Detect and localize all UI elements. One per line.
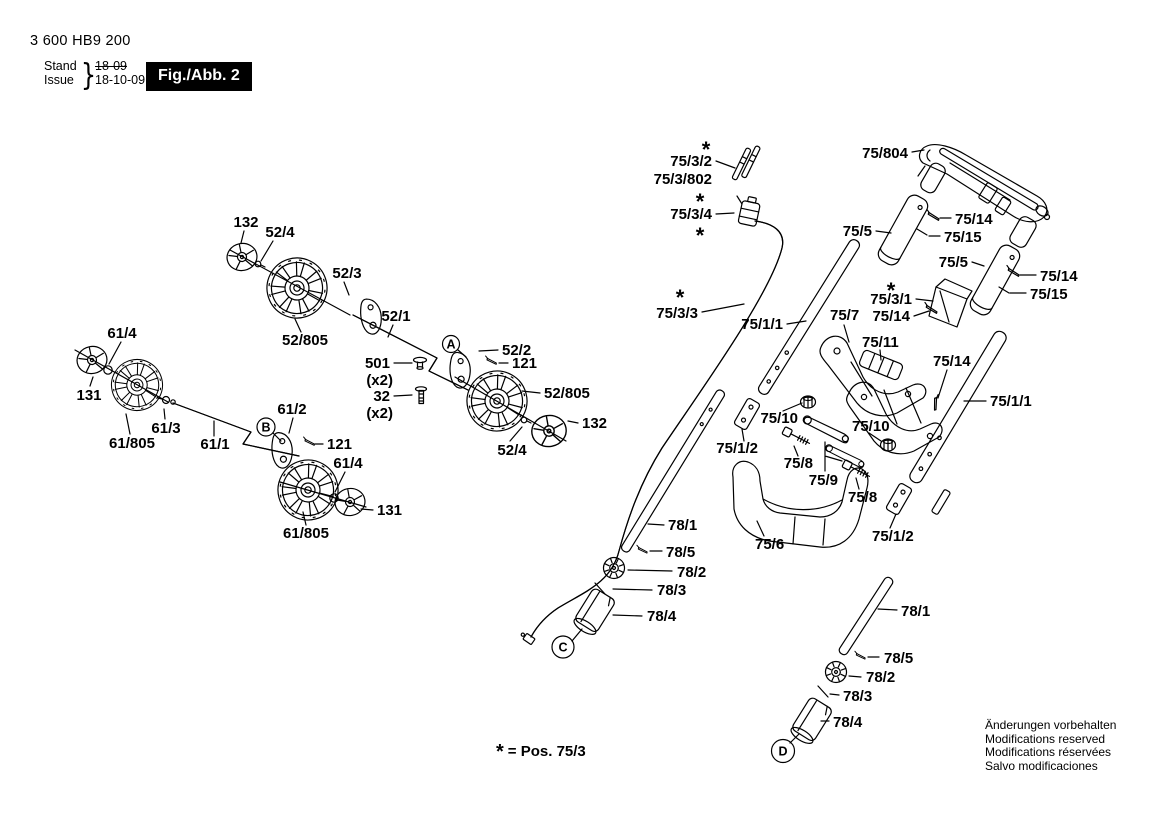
knurled-nut-left [801,396,816,408]
part-label: 75/14 [933,353,971,370]
part-label: (x2) [366,405,393,422]
screw-32 [416,387,427,404]
part-label: 75/1/1 [741,316,783,333]
part-label: 78/5 [884,650,913,667]
part-label: 131 [377,502,402,519]
callout-D: D [772,740,795,763]
part-label: 78/2 [677,564,706,581]
cable-adjuster [732,142,762,226]
part-label: 75/7 [830,307,859,324]
part-label: 61/1 [200,436,229,453]
part-label: 61/3 [151,420,180,437]
exploded-parts-diagram: *75/3/275/3/802*75/3/4*75/80475/575/1475… [0,0,1169,826]
part-label: 75/14 [1040,268,1078,285]
part-label: 501 [365,355,390,372]
part-label: 78/3 [657,582,686,599]
part-label: 75/15 [944,229,982,246]
part-label: 132 [233,214,258,231]
cable-guide-wedge [929,279,972,327]
part-label: 75/3/1 [870,291,912,308]
small-fasteners [104,209,1021,697]
part-label: 78/4 [833,714,863,731]
part-label: 75/3/4 [670,206,712,223]
part-label: 75/5 [843,223,872,240]
part-label: 75/9 [809,472,838,489]
asterisk-footnote: *= Pos. 75/3 [496,741,586,764]
part-label: 78/4 [647,608,677,625]
clamp-bolt-upper [782,427,811,447]
knurled-nut-right [881,439,896,451]
grip-tube-left [875,192,930,267]
clamp-lever-lower [823,444,866,468]
part-label: 75/14 [872,308,910,325]
clamp-bracket-right [885,483,912,516]
part-label: 121 [327,436,352,453]
part-label: 121 [512,355,537,372]
part-label: 75/1/2 [716,440,758,457]
part-label: (x2) [366,372,393,389]
notice-line: Salvo modificaciones [985,760,1116,774]
part-label: 131 [76,387,101,404]
chassis-upper-bracket [820,336,942,454]
part-label: 75/15 [1030,286,1068,303]
part-label: 75/3/802 [654,171,712,188]
part-label: 132 [582,415,607,432]
part-label: 32 [373,388,390,405]
part-label: 52/4 [265,224,295,241]
handlebar-assembly [918,145,1050,250]
lower-tube-right [838,576,895,656]
tube-segment [931,489,950,515]
part-label: 75/1/2 [872,528,914,545]
part-label: 61/805 [109,435,155,452]
part-label: 78/1 [668,517,697,534]
callout-B: B [257,418,275,436]
part-label: 75/3/3 [656,305,698,322]
part-label: 61/805 [283,525,329,542]
part-label: 75/6 [755,536,784,553]
callout-C: C [552,636,574,658]
notice-line: Änderungen vorbehalten [985,719,1116,733]
labels-layer: *75/3/275/3/802*75/3/4*75/80475/575/1475… [76,137,1078,763]
part-label: 61/4 [107,325,137,342]
clamp-bracket-left [733,398,760,431]
washer-501 [414,357,427,369]
notice-line: Modifications reserved [985,733,1116,747]
grip-tube-right [967,242,1022,317]
wing-knob-right [822,658,850,686]
asterisk-marker: * [696,223,705,248]
part-label: 52/3 [332,265,361,282]
part-label: 78/2 [866,669,895,686]
wheel-top [259,250,335,326]
modifications-notice: Änderungen vorbehaltenModifications rese… [985,719,1116,773]
part-label: 52/4 [497,442,527,459]
part-label: 52/1 [381,308,410,325]
parts-diagram-page: 3 600 HB9 200 Stand Issue } 18-09 18-10-… [0,0,1169,826]
footnote-asterisk: * [496,741,504,763]
callout-A: A [443,336,460,353]
part-label: 78/5 [666,544,695,561]
part-label: 52/805 [282,332,328,349]
part-label: 52/805 [544,385,590,402]
part-label: 61/2 [277,401,306,418]
svg-text:C: C [558,641,567,655]
part-label: 75/804 [862,145,909,162]
notice-line: Modifications réservées [985,746,1116,760]
part-label: 75/14 [955,211,993,228]
part-label: 75/8 [784,455,813,472]
part-label: 61/4 [333,455,363,472]
footnote-text: = Pos. 75/3 [508,743,586,760]
end-sleeve-left [571,587,616,637]
part-label: 75/8 [848,489,877,506]
part-label: 75/10 [852,418,890,435]
part-label: 78/1 [901,603,930,620]
svg-text:D: D [778,745,787,759]
part-label: 75/1/1 [990,393,1032,410]
part-label: 75/10 [760,410,798,427]
part-label: 75/11 [862,334,899,351]
svg-text:B: B [261,421,270,435]
part-label: 75/5 [939,254,968,271]
part-label: 78/3 [843,688,872,705]
part-label: 75/3/2 [670,153,712,170]
svg-text:A: A [446,338,455,352]
axle-bracket-middle [448,351,473,389]
clamp-bolt-lower [842,460,871,480]
